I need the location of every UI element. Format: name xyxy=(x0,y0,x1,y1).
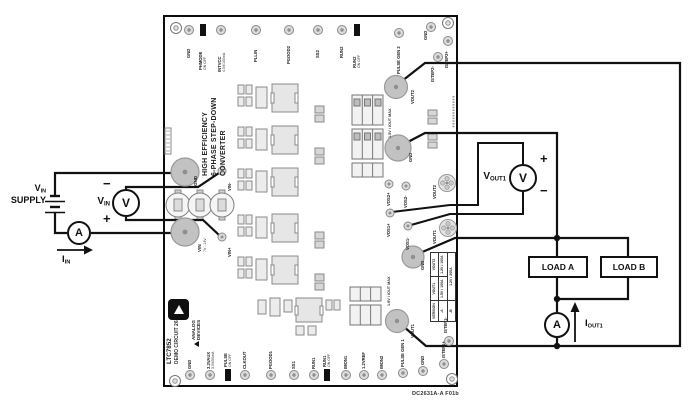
turret-label-istep1p: ISTEP1+ xyxy=(441,341,446,358)
table-cell: -B xyxy=(447,301,455,322)
iin-arrowhead xyxy=(84,246,93,255)
table-header-version: VERSION xyxy=(431,301,439,322)
vin-meter-minus-sign: − xyxy=(103,176,111,191)
part-number: LTC7852 xyxy=(166,338,173,364)
turret-label-run2: RUN2 xyxy=(339,47,344,58)
ammeter-glyph: A xyxy=(75,227,83,239)
board-title-line3: CONVERTER xyxy=(220,98,229,176)
option-label-vout1: 1.8V / IOUT MAX xyxy=(387,276,392,306)
brand-line2: DEVICES xyxy=(197,320,202,340)
board-title-line2: 6-PHASE STEP-DOWN xyxy=(211,98,220,176)
pad-label-vos1p: VOS1+ xyxy=(386,223,391,237)
load-a-box: LOAD A xyxy=(528,256,588,278)
pad-label-gnd-out1: GND xyxy=(420,261,425,270)
turret-label-clkout: CLKOUT xyxy=(242,352,247,369)
adi-wordmark: ANALOG DEVICES xyxy=(192,320,202,347)
load-top-to-gnd-wire xyxy=(420,238,557,253)
turret-label-intvcc: INTVCC4.5V/100mA xyxy=(217,53,226,72)
test-setup-figure: HIGH EFFICIENCY 6-PHASE STEP-DOWN CONVER… xyxy=(0,0,688,410)
turret-label-gnd-bottom: GND xyxy=(187,360,192,369)
version-table: VERSION VOUT1 VOUT2 -A 1.5V / 100A 1.2V … xyxy=(430,252,456,322)
pad-label-vout2: VOUT2 xyxy=(410,90,415,104)
board-title-line1: HIGH EFFICIENCY xyxy=(202,98,211,176)
phase-blocks xyxy=(238,84,340,335)
turret-label-ss1: SS1 xyxy=(291,361,296,369)
pad-label-vin-sense-minus: VIN- xyxy=(227,183,232,191)
turret-label-gnd-topright: GND xyxy=(423,31,428,40)
pad-label-vos2m: VOS2- xyxy=(403,195,408,208)
vout1-voltmeter: V xyxy=(509,164,537,192)
pad-label-vos2p: VOS2+ xyxy=(386,192,391,206)
board-title: HIGH EFFICIENCY 6-PHASE STEP-DOWN CONVER… xyxy=(202,98,228,176)
vin-supply-label: VIN SUPPLY xyxy=(6,183,46,207)
jumper-label-run1: RUN1ON OFF xyxy=(322,354,331,367)
turret-label-gnd-bottomright: GND xyxy=(420,356,425,365)
pad-label-vout1-jack: VOUT1 xyxy=(432,230,437,244)
pad-label-vin: VIN7V - 14V xyxy=(197,238,207,252)
iout1-label: IOUT1 xyxy=(585,318,603,330)
pad-label-gnd-in: GND xyxy=(193,176,199,186)
vin-meter-plus-sign: + xyxy=(103,211,111,226)
adi-triangle-icon xyxy=(194,341,199,347)
voltmeter-glyph: V xyxy=(122,196,130,210)
turret-label-istep2m: ISTEP2- xyxy=(430,66,435,82)
option-label-vout2: 1.5V / IOUT MAX xyxy=(388,108,393,138)
turret-label-pgood1: PGOOD1 xyxy=(268,351,273,369)
table-header-vout1: VOUT1 xyxy=(431,277,439,301)
pad-label-vout2-jack: VOUT2 xyxy=(432,185,437,199)
turret-label-pulse-gen2: PULSE GEN 2 xyxy=(396,46,401,74)
turret-label-pllin: PLLIN xyxy=(253,50,258,62)
battery-icon xyxy=(45,196,65,213)
adi-logo-icon xyxy=(168,299,189,320)
vout1-meter-minus-sign: − xyxy=(540,183,548,198)
supply-negative-wire xyxy=(55,173,171,195)
turret-label-istep2p: ISTEP2+ xyxy=(444,51,449,68)
pad-label-gnd-out2: GND xyxy=(408,153,413,162)
iout1-ammeter: A xyxy=(544,312,570,338)
turret-label-aux: 3.3VAUX3.3V/50mA xyxy=(206,352,215,369)
iout1-arrowhead xyxy=(571,302,580,312)
vout1-meter-plus-sign: + xyxy=(540,151,548,166)
output-option-jumper-blocks xyxy=(350,95,383,325)
iin-ammeter: A xyxy=(67,221,91,245)
turret-label-pulse-gen1: PULSE GEN 1 xyxy=(400,339,405,367)
turret-label-imon1: IMON1 xyxy=(343,356,348,369)
turret-label-ss2: SS2 xyxy=(315,50,320,58)
turret-label-gnd-top: GND xyxy=(186,49,191,58)
jumper-label-run2: RUN2ON OFF xyxy=(352,55,361,68)
table-cell: -A xyxy=(439,301,447,322)
vin-voltmeter: V xyxy=(112,189,140,217)
turret-label-run1: RUN1 xyxy=(311,358,316,369)
figure-caption: DC2631A-A F01b xyxy=(412,391,472,397)
pad-label-vos1m: VOS1- xyxy=(405,237,410,250)
table-header-vout2: VOUT2 xyxy=(431,253,439,277)
turret-label-12vref: 1.2VREF xyxy=(361,352,366,369)
table-cell: 1.2V / 200A xyxy=(447,253,455,301)
jumper-label-pulse: PULSEON OFF xyxy=(223,353,232,367)
ruler-mark xyxy=(165,128,171,154)
table-cell: 1.2V / 100A xyxy=(439,253,447,277)
pad-label-vout1: VOUT1 xyxy=(410,324,415,338)
load-b-box: LOAD B xyxy=(600,256,658,278)
iin-label: IIN xyxy=(62,254,70,266)
voltmeter-glyph: V xyxy=(519,171,527,185)
jumper-label-phmode: PHMODEON OFF xyxy=(198,52,207,70)
input-capacitors xyxy=(166,190,234,220)
vin-meter-label: VIN xyxy=(80,196,110,208)
turret-label-pgood2: PGOOD2 xyxy=(286,46,291,64)
table-cell: 1.5V / 100A xyxy=(439,277,447,301)
ammeter-glyph: A xyxy=(553,319,561,331)
vout1-meter-label: VOUT1 xyxy=(472,171,506,183)
turret-label-imon2: IMON2 xyxy=(379,356,384,369)
pad-label-vin-sense-plus: VIN+ xyxy=(227,248,232,257)
